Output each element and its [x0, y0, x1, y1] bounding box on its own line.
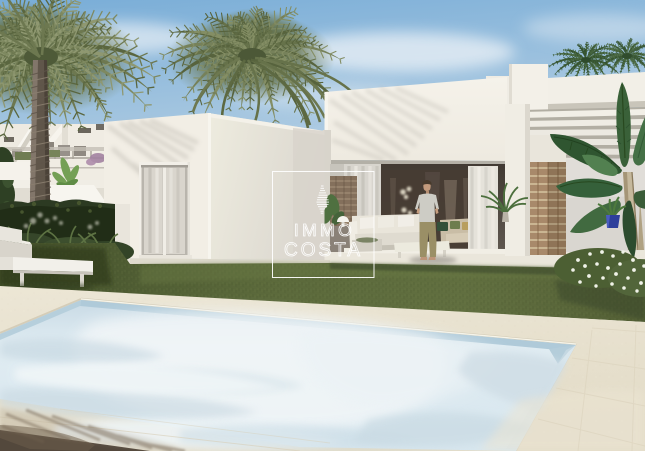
svg-text:IMMO: IMMO [294, 220, 355, 240]
svg-text:COSTA: COSTA [284, 240, 363, 261]
